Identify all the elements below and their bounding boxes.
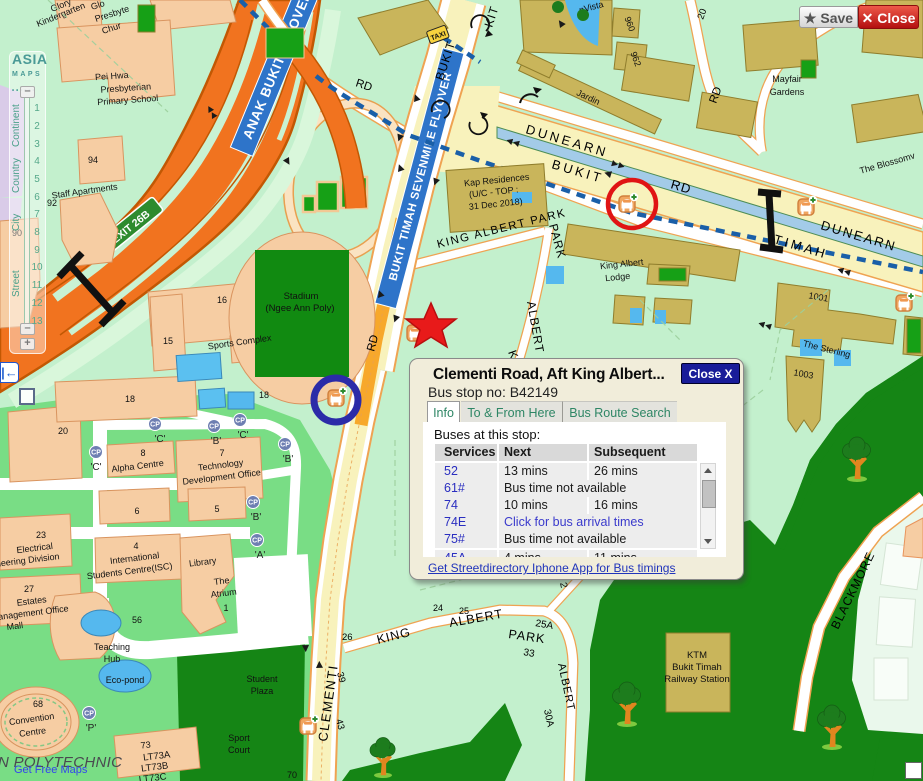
svg-text:1: 1: [223, 603, 228, 613]
svg-text:Sport: Sport: [228, 733, 250, 743]
svg-text:23: 23: [36, 530, 46, 540]
svg-text:7: 7: [219, 448, 224, 458]
svg-text:92: 92: [47, 198, 57, 208]
svg-text:Stadium: Stadium: [284, 291, 319, 302]
svg-text:Gardens: Gardens: [770, 87, 805, 97]
svg-text:20: 20: [58, 426, 68, 436]
svg-text:'B': 'B': [211, 436, 222, 447]
svg-text:15: 15: [163, 336, 173, 346]
svg-text:6: 6: [134, 506, 139, 516]
svg-text:Mall: Mall: [6, 620, 24, 632]
svg-text:18: 18: [125, 394, 135, 404]
svg-text:Hub: Hub: [104, 654, 121, 664]
svg-text:'C': 'C': [237, 430, 248, 441]
svg-text:'B': 'B': [251, 512, 262, 523]
svg-text:Teaching: Teaching: [94, 642, 130, 652]
svg-text:8: 8: [140, 448, 145, 458]
svg-text:70: 70: [287, 770, 297, 780]
svg-text:Mayfair: Mayfair: [772, 74, 802, 84]
svg-text:KTM: KTM: [687, 650, 707, 661]
svg-text:Plaza: Plaza: [251, 686, 274, 696]
svg-text:26: 26: [342, 632, 353, 643]
svg-text:25: 25: [459, 606, 469, 616]
svg-text:'B': 'B': [283, 454, 294, 465]
svg-text:Bukit Timah: Bukit Timah: [672, 662, 722, 673]
svg-text:'P': 'P': [86, 723, 97, 734]
svg-text:Court: Court: [228, 745, 251, 755]
svg-text:16: 16: [217, 295, 227, 305]
svg-text:18: 18: [259, 390, 269, 400]
svg-text:68: 68: [33, 699, 43, 709]
svg-text:Student: Student: [246, 674, 278, 684]
svg-text:'A': 'A': [255, 550, 266, 561]
svg-text:27: 27: [24, 584, 34, 594]
svg-text:The: The: [213, 575, 230, 587]
svg-text:Eco-pond: Eco-pond: [106, 675, 145, 685]
svg-text:'C': 'C': [90, 462, 101, 473]
svg-text:24: 24: [433, 603, 443, 613]
svg-text:4: 4: [133, 541, 138, 551]
svg-text:94: 94: [88, 155, 98, 165]
svg-text:'C': 'C': [154, 434, 165, 445]
svg-text:73: 73: [140, 739, 151, 750]
svg-text:5: 5: [214, 504, 219, 514]
svg-text:(Ngee Ann Poly): (Ngee Ann Poly): [265, 303, 334, 314]
svg-text:Railway Station: Railway Station: [664, 674, 729, 685]
svg-text:56: 56: [132, 615, 142, 625]
